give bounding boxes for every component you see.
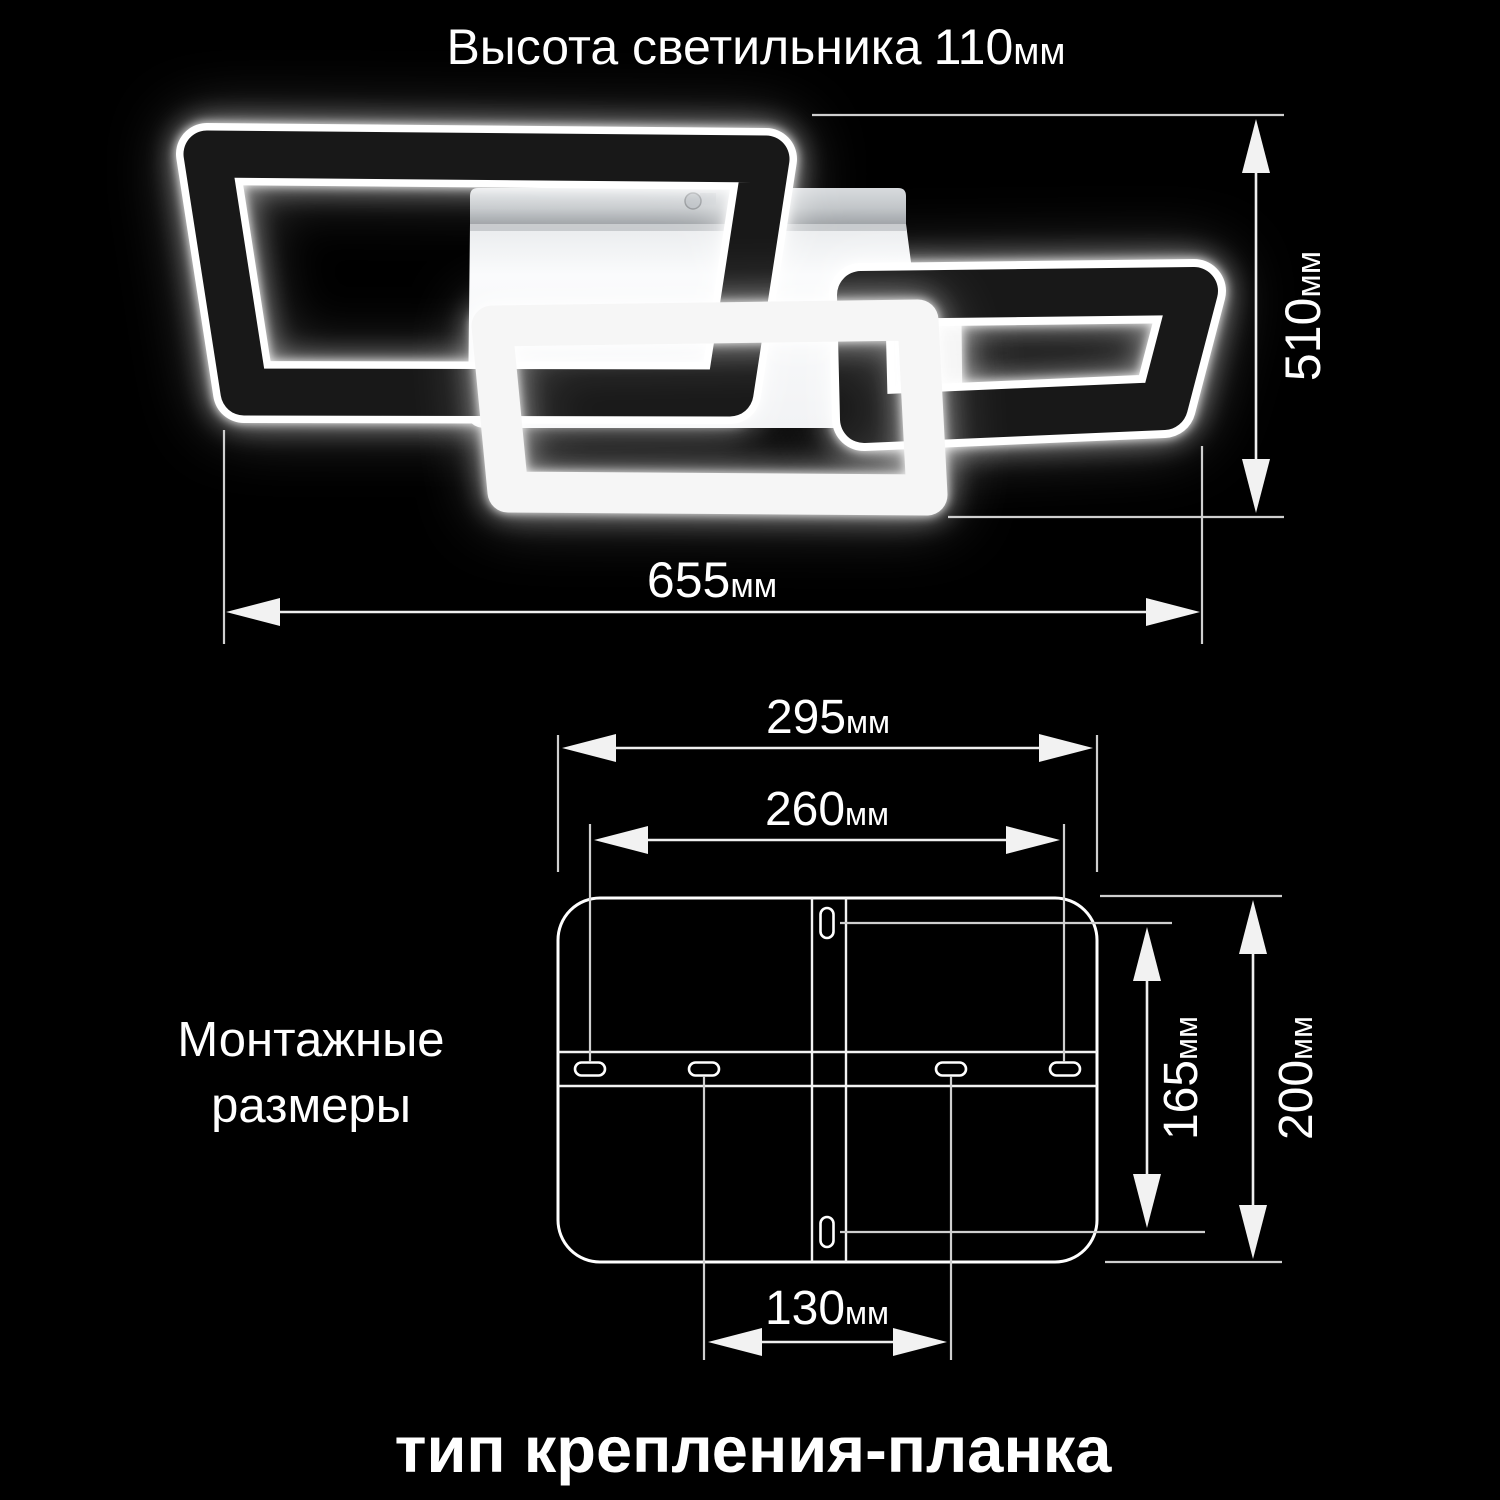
arrow-left-icon: [594, 826, 648, 854]
center-slot-bottom: [821, 1217, 834, 1247]
arrow-left-icon: [226, 598, 280, 626]
center-slot-top: [821, 908, 834, 938]
arrow-down-icon: [1239, 1205, 1267, 1259]
screw-hole: [1050, 1063, 1080, 1076]
dim-lamp-width: 655мм: [224, 430, 1202, 644]
mounting-sizes-label-line2: размеры: [211, 1079, 411, 1133]
product-dimension-diagram: Высота светильника110мм: [0, 0, 1500, 1500]
arrow-right-icon: [893, 1328, 947, 1356]
dim-lamp-width-label: 655мм: [647, 552, 777, 608]
arrow-up-icon: [1242, 119, 1270, 173]
arrow-right-icon: [1039, 734, 1093, 762]
dim-slots-height: 165мм: [840, 923, 1208, 1232]
screw-hole: [689, 1063, 719, 1076]
arrow-up-icon: [1239, 900, 1267, 954]
dim-plate-height: 200мм: [1100, 896, 1323, 1262]
arrow-right-icon: [1146, 598, 1200, 626]
dim-center-holes-label: 130мм: [765, 1282, 889, 1335]
mount-type-title: тип крепления-планка: [395, 1413, 1113, 1486]
dim-plate-height-label: 200мм: [1270, 1016, 1323, 1140]
canopy-screw: [685, 193, 701, 209]
screw-hole: [936, 1063, 966, 1076]
arrow-left-icon: [562, 734, 616, 762]
mounting-plate-outline: [558, 898, 1097, 1262]
dim-lamp-height-label: 510мм: [1275, 251, 1331, 381]
dim-plate-width-label: 295мм: [766, 691, 890, 744]
dim-holes-width-label: 260мм: [765, 783, 889, 836]
lamp-height-title: Высота светильника110мм: [446, 19, 1065, 75]
screw-hole: [575, 1063, 605, 1076]
lamp-illustration: [207, 154, 1194, 495]
arrow-left-icon: [708, 1328, 762, 1356]
dim-slots-height-label: 165мм: [1155, 1016, 1208, 1140]
canopy-bracket: [700, 193, 716, 205]
arrow-down-icon: [1133, 1174, 1161, 1228]
arrow-right-icon: [1006, 826, 1060, 854]
diagram-canvas: Высота светильника110мм: [0, 0, 1500, 1500]
arrow-up-icon: [1133, 927, 1161, 981]
canopy-seam: [470, 224, 906, 231]
mounting-sizes-label: Монтажные размеры: [177, 1013, 444, 1133]
mounting-plate-diagram: 295мм 260мм 165мм 200мм: [558, 691, 1323, 1360]
mounting-sizes-label-line1: Монтажные: [177, 1013, 444, 1067]
arrow-down-icon: [1242, 459, 1270, 513]
